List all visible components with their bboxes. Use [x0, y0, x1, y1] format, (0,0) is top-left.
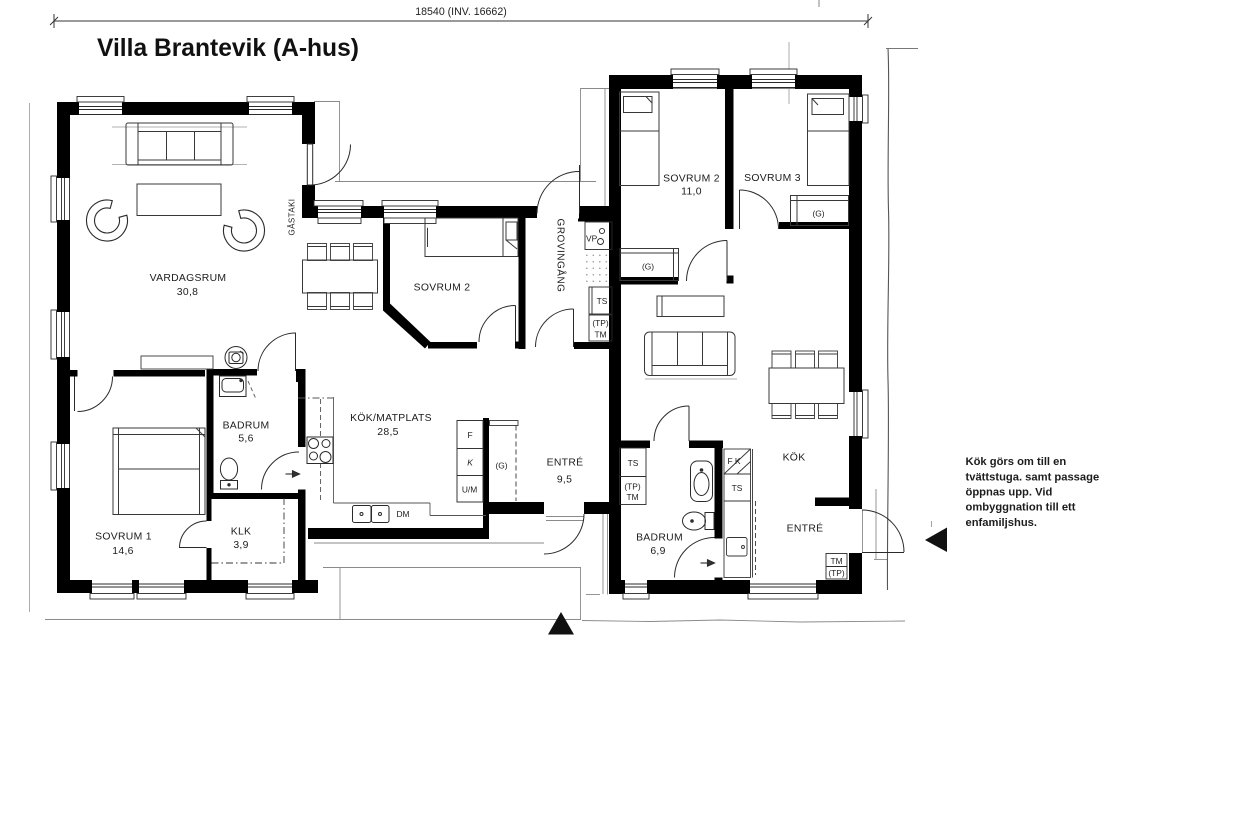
svg-text:9,5: 9,5 — [557, 475, 572, 486]
svg-text:SOVRUM 3: SOVRUM 3 — [744, 173, 801, 184]
svg-text:F K: F K — [727, 456, 740, 466]
svg-text:F: F — [467, 430, 472, 440]
svg-text:TM: TM — [626, 492, 638, 502]
svg-text:KÖK: KÖK — [783, 452, 806, 464]
svg-text:TS: TS — [597, 296, 608, 306]
svg-text:(TP): (TP) — [624, 482, 640, 492]
svg-text:14,6: 14,6 — [112, 546, 133, 557]
svg-text:ombyggnation till ett: ombyggnation till ett — [966, 502, 1076, 514]
svg-text:ENTRÉ: ENTRÉ — [547, 456, 584, 469]
svg-text:K: K — [467, 458, 473, 468]
svg-text:U/M: U/M — [462, 485, 477, 495]
svg-text:SOVRUM 1: SOVRUM 1 — [95, 532, 152, 543]
svg-text:(G): (G) — [642, 262, 654, 272]
svg-text:6,9: 6,9 — [650, 546, 665, 557]
svg-text:28,5: 28,5 — [377, 427, 398, 438]
svg-text:DM: DM — [396, 509, 409, 519]
svg-text:VARDAGSRUM: VARDAGSRUM — [150, 273, 227, 284]
svg-text:TS: TS — [732, 483, 743, 493]
svg-text:KÖK/MATPLATS: KÖK/MATPLATS — [350, 412, 432, 424]
svg-text:TS: TS — [628, 458, 639, 468]
svg-text:TM: TM — [594, 330, 606, 340]
svg-text:SOVRUM 2: SOVRUM 2 — [414, 283, 471, 294]
svg-text:tvättstuga. samt passage: tvättstuga. samt passage — [966, 471, 1100, 483]
svg-text:öppnas upp. Vid: öppnas upp. Vid — [966, 487, 1053, 499]
svg-text:(G): (G) — [495, 461, 507, 471]
svg-text:(G): (G) — [812, 209, 824, 219]
svg-text:(TP): (TP) — [592, 318, 608, 328]
svg-text:3,9: 3,9 — [233, 540, 248, 551]
svg-text:30,8: 30,8 — [177, 287, 198, 298]
svg-text:ENTRÉ: ENTRÉ — [787, 522, 824, 535]
svg-text:5,6: 5,6 — [238, 434, 253, 445]
svg-text:(TP): (TP) — [828, 568, 844, 578]
svg-text:GROVINGÅNG: GROVINGÅNG — [555, 219, 568, 293]
svg-text:BADRUM: BADRUM — [223, 421, 270, 432]
svg-text:KLK: KLK — [231, 527, 252, 538]
svg-text:VP: VP — [586, 234, 598, 244]
svg-text:BADRUM: BADRUM — [636, 533, 683, 544]
svg-text:18540 (INV. 16662): 18540 (INV. 16662) — [415, 6, 507, 18]
svg-text:Villa Brantevik (A-hus): Villa Brantevik (A-hus) — [97, 35, 359, 62]
svg-text:Kök görs om till en: Kök görs om till en — [966, 456, 1067, 468]
svg-text:TM: TM — [830, 556, 842, 566]
svg-text:enfamiljshus.: enfamiljshus. — [966, 517, 1038, 529]
svg-text:SOVRUM 2: SOVRUM 2 — [663, 174, 720, 185]
svg-text:GÅSTAKI: GÅSTAKI — [288, 199, 297, 236]
svg-text:11,0: 11,0 — [681, 187, 702, 198]
